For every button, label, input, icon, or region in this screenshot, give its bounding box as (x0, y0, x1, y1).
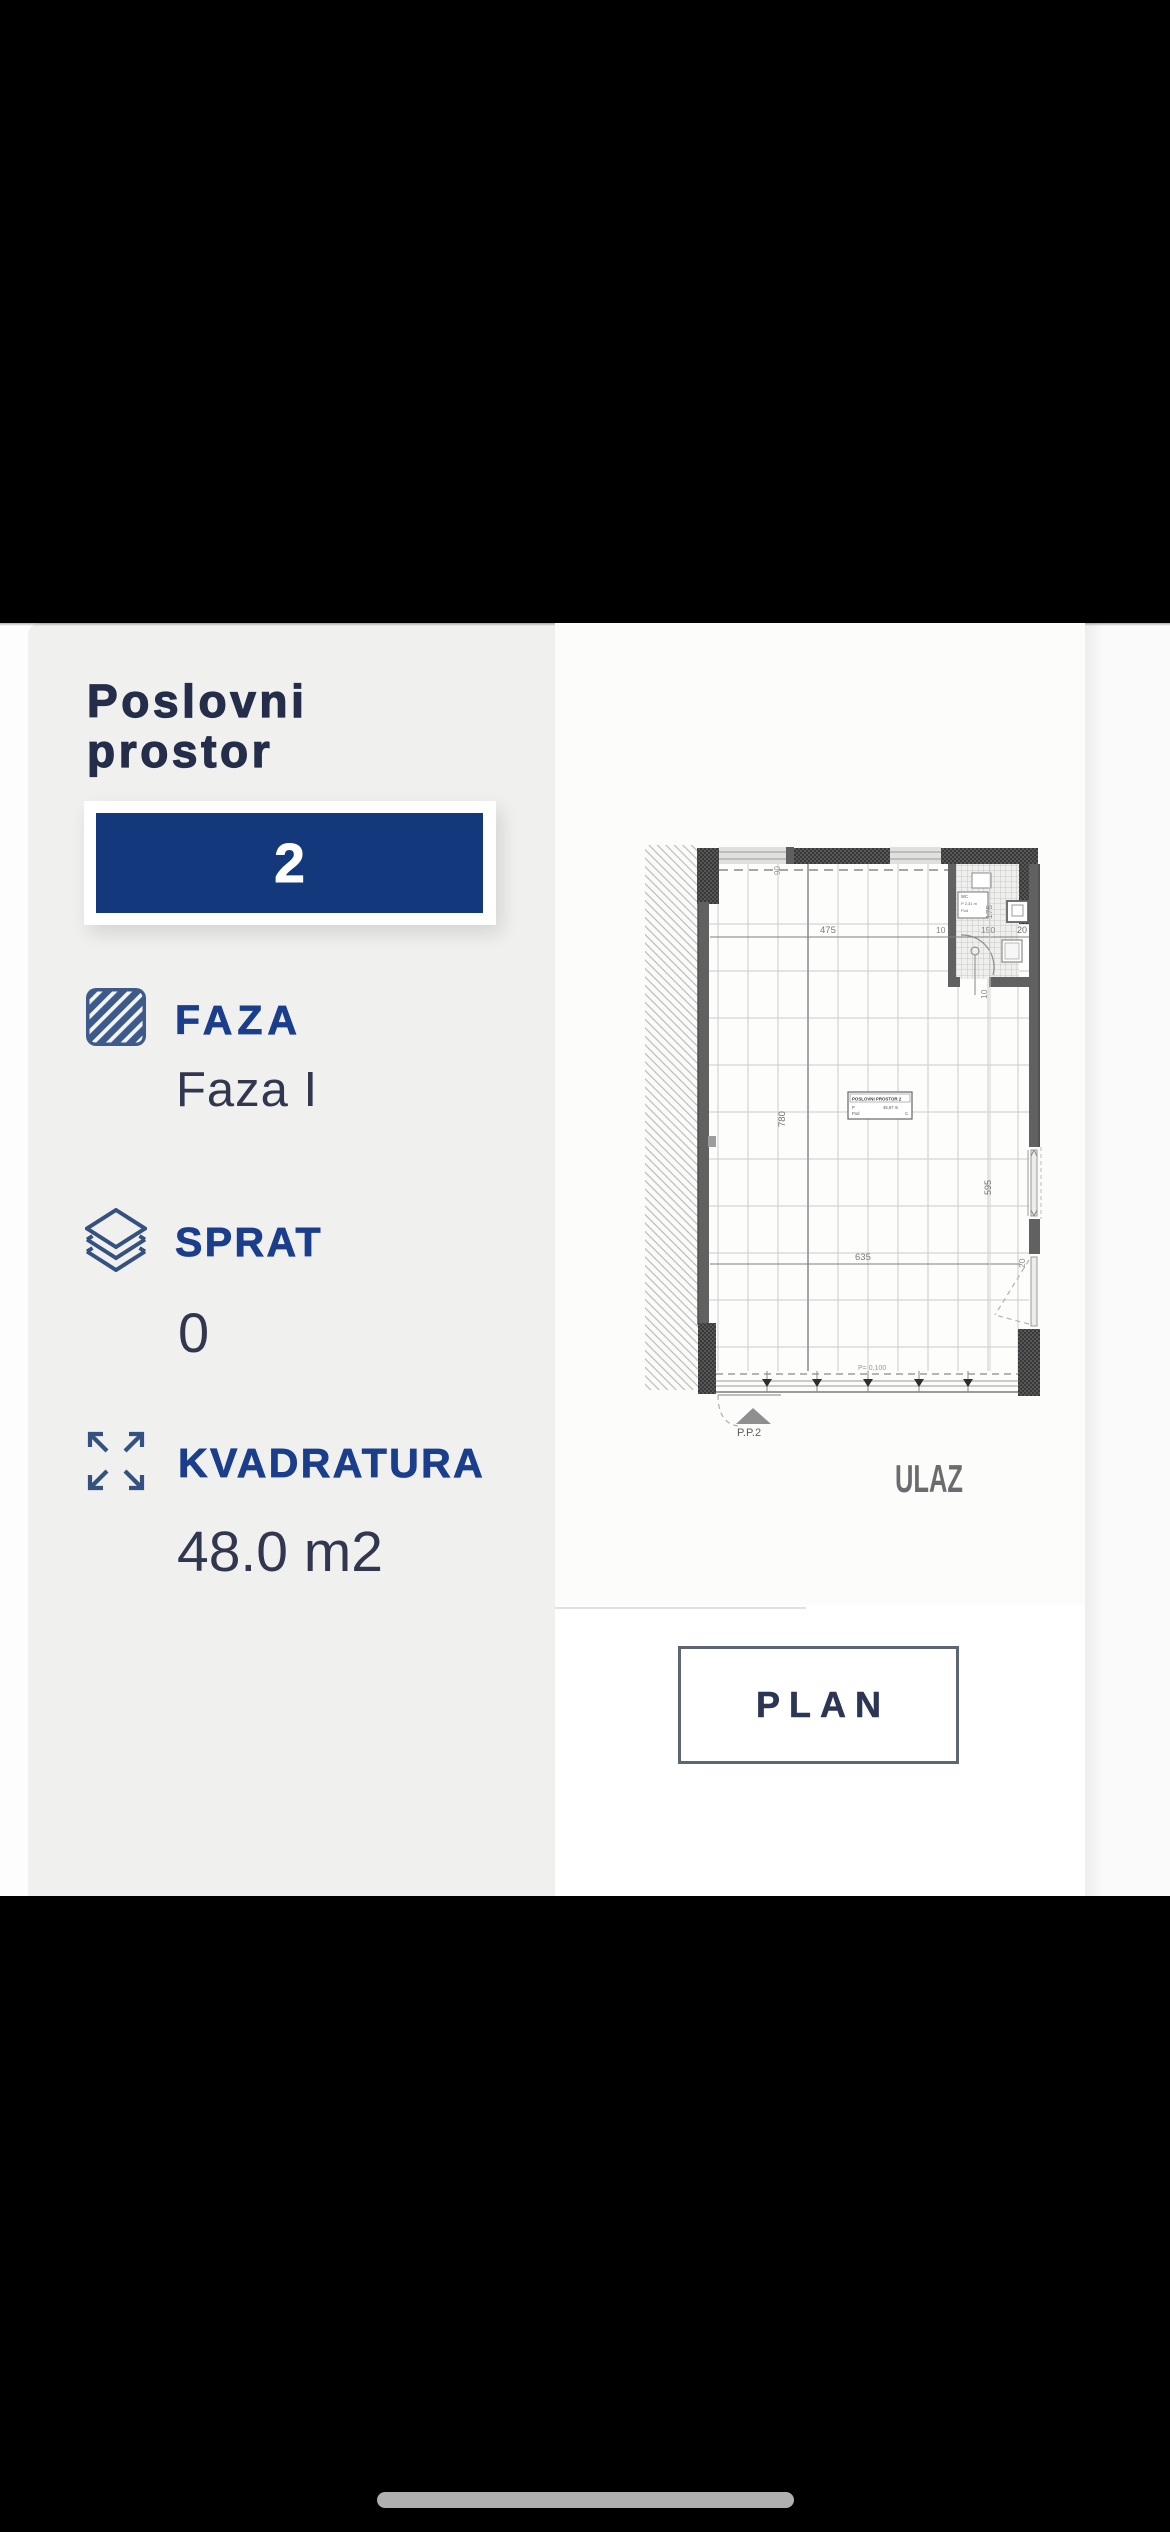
svg-text:10: 10 (979, 989, 989, 999)
svg-text:P.P.2: P.P.2 (737, 1427, 761, 1439)
svg-text:P 2,31 m: P 2,31 m (961, 901, 978, 906)
svg-text:90: 90 (773, 866, 782, 875)
svg-text:20: 20 (1017, 925, 1027, 935)
svg-text:45,67 m: 45,67 m (883, 1105, 899, 1110)
svg-text:C: C (905, 1111, 908, 1116)
svg-text:475: 475 (820, 925, 836, 936)
svg-text:ULAZ: ULAZ (895, 1458, 963, 1501)
svg-text:175: 175 (984, 905, 994, 919)
svg-text:635: 635 (855, 1252, 871, 1263)
svg-text:WC: WC (961, 894, 968, 899)
svg-text:Pod: Pod (961, 908, 968, 913)
svg-text:10: 10 (936, 925, 946, 935)
svg-text:150: 150 (981, 925, 995, 935)
svg-text:P: P (852, 1105, 855, 1110)
svg-text:780: 780 (777, 1111, 788, 1127)
svg-text:20: 20 (1017, 1258, 1027, 1268)
svg-text:P= 0,100: P= 0,100 (858, 1365, 886, 1372)
svg-text:595: 595 (983, 1180, 993, 1195)
svg-text:Pod: Pod (852, 1111, 860, 1116)
svg-text:POSLOVNI PROSTOR 2: POSLOVNI PROSTOR 2 (852, 1097, 902, 1102)
